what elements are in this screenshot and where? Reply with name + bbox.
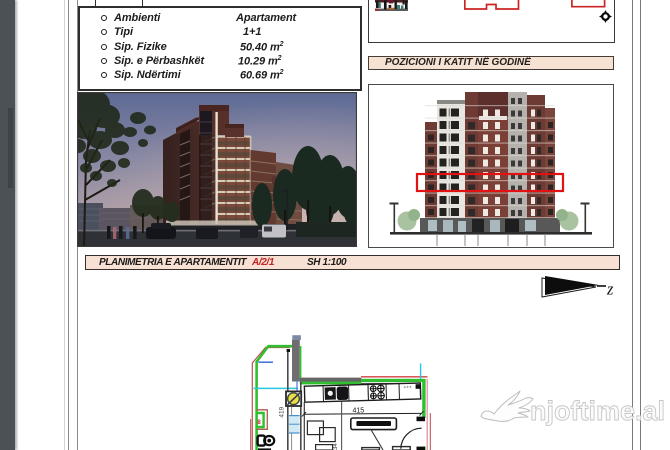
svg-text:415: 415 — [353, 408, 365, 415]
svg-text:8: 8 — [257, 419, 261, 426]
svg-text:z: z — [606, 280, 614, 299]
svg-text:njoftime.al: njoftime.al — [530, 396, 665, 426]
svg-text:34: 34 — [333, 443, 339, 450]
svg-text:419: 419 — [279, 406, 286, 417]
svg-text:+++: +++ — [404, 384, 412, 389]
